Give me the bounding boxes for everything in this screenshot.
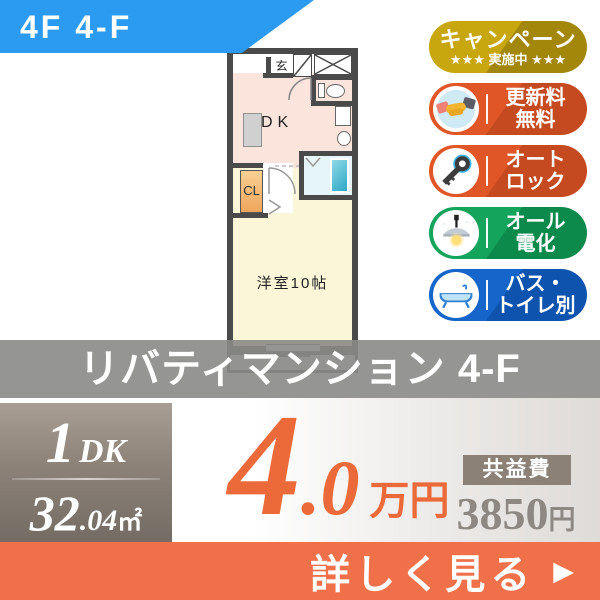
- key-icon: [433, 148, 479, 194]
- badge-no-renewal-fee-text: 更新料 無料: [488, 87, 587, 131]
- badge-campaign-line1: キャンペーン: [440, 28, 577, 52]
- rent-unit: 万円: [370, 468, 450, 526]
- pendant-lamp-icon: [433, 210, 479, 256]
- rent-integer: 4: [228, 398, 301, 532]
- common-fee-value: 3850円: [451, 487, 581, 540]
- area-fraction: .04: [80, 504, 118, 537]
- feature-badge-list: キャンペーン ★★★ 実施中 ★★★ 更新料 無料: [429, 21, 587, 321]
- rent-fraction: .0: [301, 443, 360, 533]
- badge-all-electric: オール 電化: [429, 207, 587, 259]
- area-unit: ㎡: [117, 507, 142, 536]
- floorplan: 玄 DK CL 洋室10帖: [227, 48, 358, 352]
- summary-section: 1DK 32.04㎡ 4.0万円 共益費 3850円: [0, 398, 600, 542]
- badge-auto-lock: オート ロック: [429, 145, 587, 197]
- badge-campaign-line2: ★★★ 実施中 ★★★: [450, 52, 566, 67]
- details-button-label: 詳しく見る: [310, 542, 535, 600]
- badge-separate-bath-toilet: バス・ トイレ別: [429, 269, 587, 321]
- floor-unit-badge: 4F 4-F: [0, 0, 314, 53]
- badge-auto-lock-text: オート ロック: [488, 149, 587, 193]
- details-button[interactable]: 詳しく見る ▶: [0, 542, 600, 600]
- common-fee-label: 共益費: [463, 455, 571, 485]
- property-name-band: リバティマンション 4-F: [0, 340, 600, 398]
- divider-line: [12, 478, 160, 480]
- badge-all-electric-text: オール 電化: [488, 211, 587, 255]
- property-name: リバティマンション 4-F: [79, 347, 521, 391]
- arrow-right-icon: ▶: [553, 556, 574, 587]
- layout-type-suffix: DK: [79, 433, 126, 470]
- area-integer: 32: [30, 485, 80, 541]
- bathtub-icon: [433, 272, 479, 318]
- floorplan-lines: [233, 54, 352, 346]
- badge-no-renewal-fee: 更新料 無料: [429, 83, 587, 135]
- handshake-icon: [433, 86, 479, 132]
- layout-type-number: 1: [46, 410, 75, 475]
- badge-campaign: キャンペーン ★★★ 実施中 ★★★: [429, 21, 587, 73]
- badge-separate-bath-toilet-text: バス・ トイレ別: [488, 273, 587, 317]
- floor-unit-label: 4F 4-F: [0, 0, 314, 46]
- rent-price: 4.0万円: [228, 398, 450, 533]
- layout-area-box: 1DK 32.04㎡: [0, 403, 172, 542]
